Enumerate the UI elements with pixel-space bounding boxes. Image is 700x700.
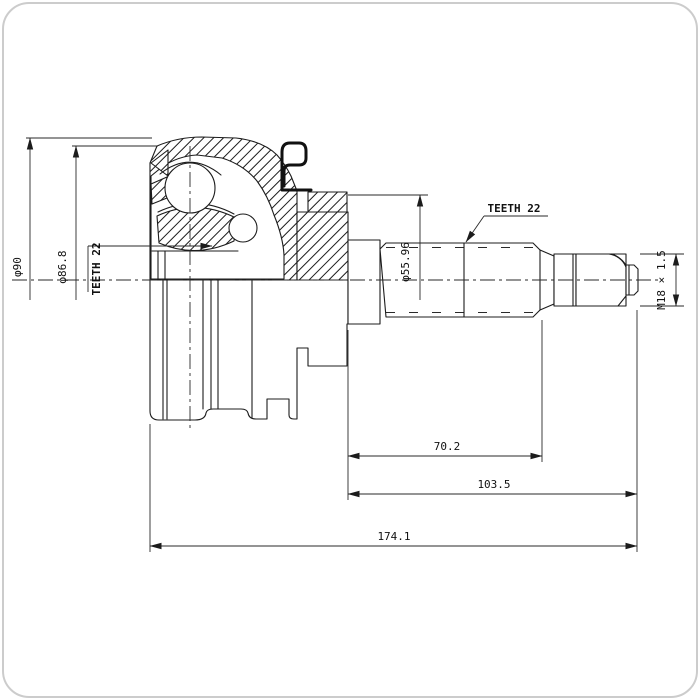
image-frame bbox=[3, 3, 697, 697]
dim-label-70-2: 70.2 bbox=[434, 440, 461, 453]
dim-label-teeth-left: TEETH 22 bbox=[90, 243, 103, 296]
joint-housing bbox=[150, 137, 348, 420]
dim-label-dia-55-96: φ55.96 bbox=[399, 242, 412, 282]
back-hub-section bbox=[297, 212, 348, 280]
dim-label-dia-86-8: φ86.8 bbox=[56, 250, 69, 283]
inner-race-section bbox=[157, 207, 236, 250]
extension-lines bbox=[26, 138, 684, 552]
dim-label-dia-90: φ90 bbox=[11, 257, 24, 277]
shaft-shoulder bbox=[348, 240, 380, 324]
inner-race-shoulder bbox=[229, 214, 257, 242]
drawing-canvas: φ90 φ86.8 TEETH 22 φ55.96 TEETH 22 M18 ×… bbox=[0, 0, 700, 700]
dim-label-teeth-right: TEETH 22 bbox=[488, 202, 541, 215]
dim-label-174-1: 174.1 bbox=[377, 530, 410, 543]
cv-joint-technical-drawing: φ90 φ86.8 TEETH 22 φ55.96 TEETH 22 M18 ×… bbox=[0, 0, 700, 700]
output-shaft bbox=[348, 240, 638, 324]
back-flange-section bbox=[308, 192, 347, 212]
dim-label-thread: M18 × 1.5 bbox=[655, 250, 668, 310]
leader-teeth-right bbox=[466, 216, 484, 242]
housing-lower-silhouette bbox=[150, 280, 348, 420]
dim-label-103-5: 103.5 bbox=[477, 478, 510, 491]
